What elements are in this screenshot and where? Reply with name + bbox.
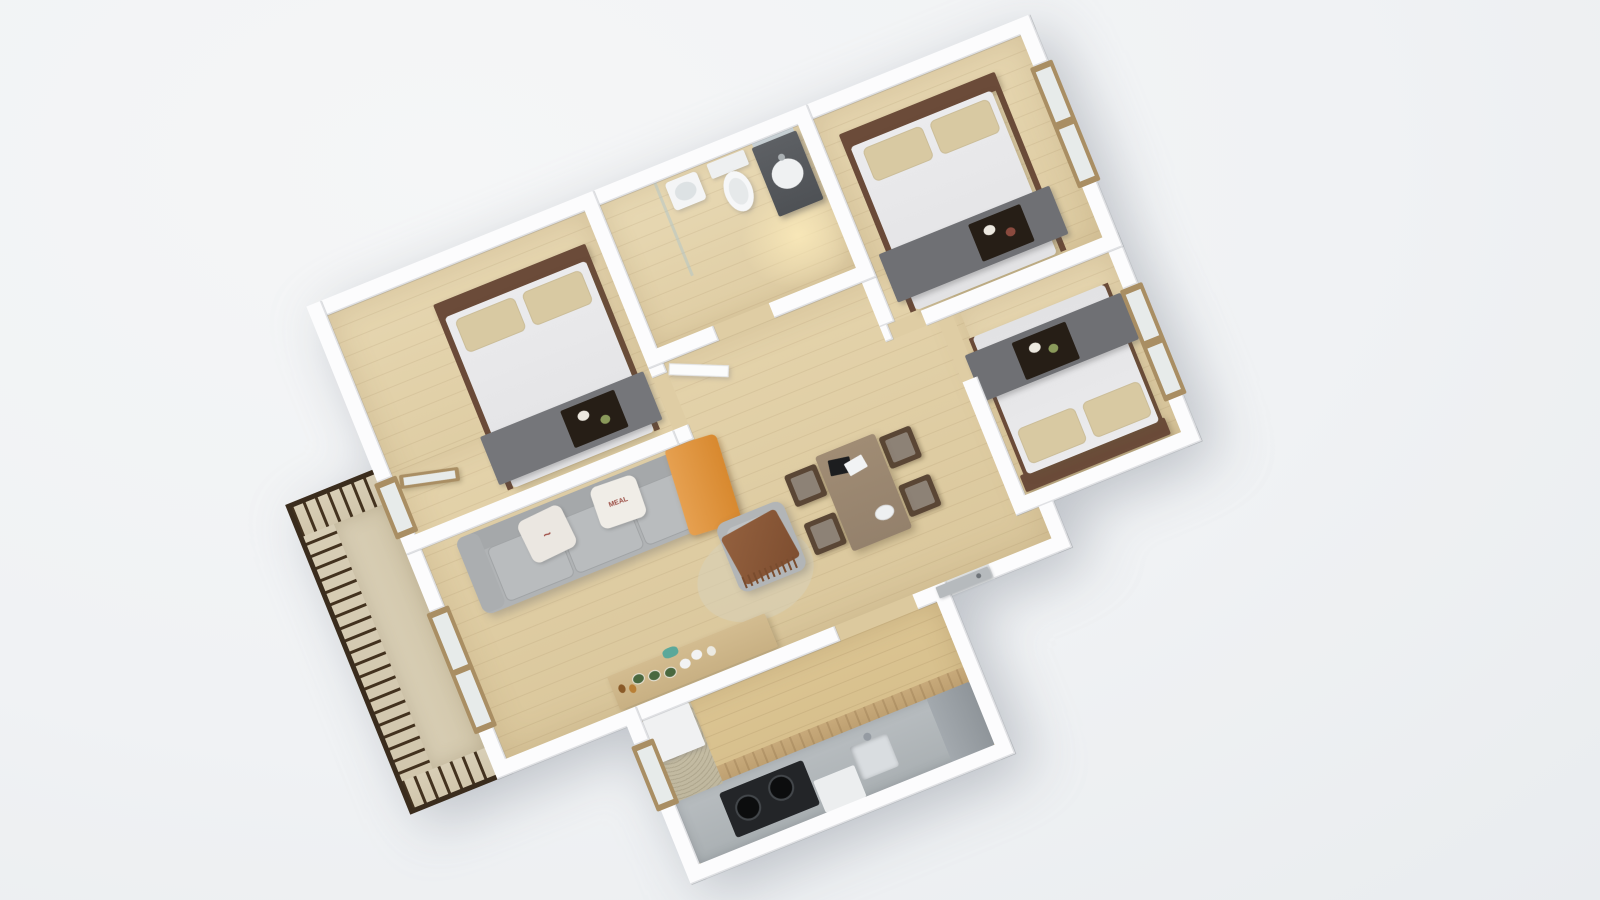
floorplan-scene: ~MEAL xyxy=(0,0,1600,900)
bedroom-1-open-door-leaf xyxy=(669,363,729,377)
floor-plan: ~MEAL xyxy=(214,7,1311,900)
